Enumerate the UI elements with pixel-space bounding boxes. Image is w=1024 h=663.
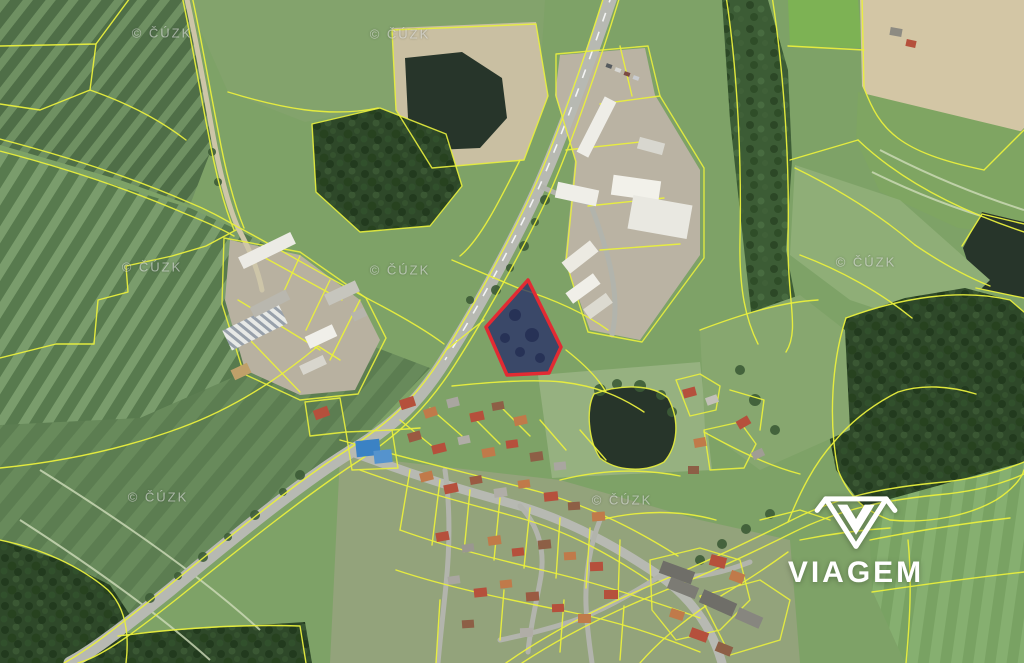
house	[554, 461, 567, 470]
blue-roof-building	[373, 449, 392, 464]
house	[578, 614, 591, 623]
cuzk-watermark: © ČÚZK	[836, 255, 897, 270]
map-viewport[interactable]: © ČÚZK© ČÚZK© ČÚZK© ČÚZK© ČÚZK© ČÚZK© ČÚ…	[0, 0, 1024, 663]
cuzk-watermark: © ČÚZK	[132, 26, 193, 41]
house	[538, 539, 552, 549]
cuzk-watermark: © ČÚZK	[592, 493, 653, 508]
house	[518, 479, 531, 489]
house	[520, 628, 533, 637]
viagem-gem-icon	[812, 483, 900, 555]
house	[448, 575, 461, 585]
house	[506, 439, 519, 449]
house	[462, 543, 475, 553]
house	[529, 451, 543, 462]
house	[493, 487, 507, 498]
cuzk-watermark: © ČÚZK	[370, 263, 431, 278]
house	[568, 502, 581, 511]
house	[590, 562, 603, 571]
house	[604, 590, 618, 599]
house	[462, 620, 475, 629]
cuzk-watermark: © ČÚZK	[128, 490, 189, 505]
house	[688, 466, 699, 474]
house	[512, 547, 525, 556]
cuzk-watermark: © ČÚZK	[370, 27, 431, 42]
cuzk-watermark: © ČÚZK	[122, 260, 183, 275]
house	[564, 552, 577, 561]
house	[544, 491, 559, 501]
viagem-logo-text: VIAGEM	[788, 558, 924, 588]
house	[526, 592, 540, 602]
house	[500, 579, 513, 588]
house	[592, 512, 606, 522]
house	[474, 587, 488, 597]
house	[552, 604, 564, 612]
viagem-logo: VIAGEM	[768, 483, 944, 588]
house	[487, 535, 501, 546]
